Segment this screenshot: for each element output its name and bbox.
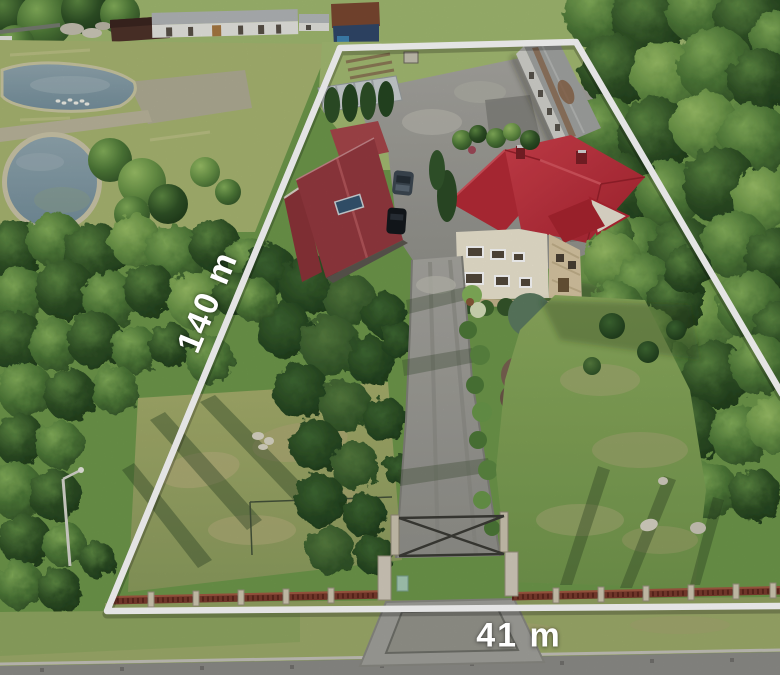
photo-canvas: [0, 0, 780, 675]
boundary-width-label: 41 m: [476, 617, 562, 656]
aerial-photo: 140 m 41 m: [0, 0, 780, 675]
photo-grain: [0, 0, 780, 675]
